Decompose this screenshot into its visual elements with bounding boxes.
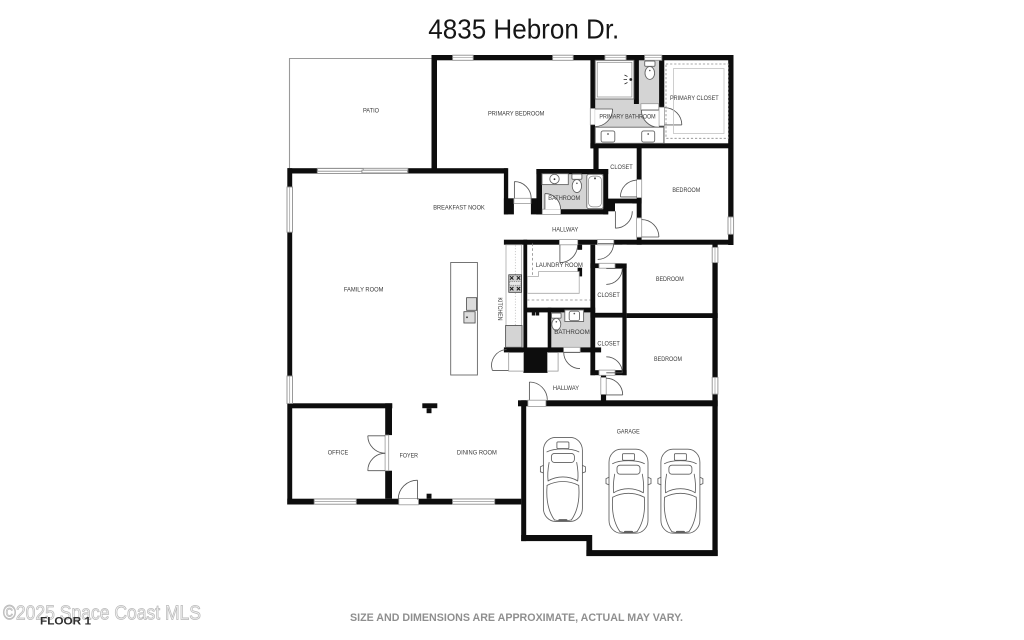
svg-text:LAUNDRY ROOM: LAUNDRY ROOM xyxy=(536,262,583,270)
svg-text:4835 Hebron Dr.: 4835 Hebron Dr. xyxy=(428,14,619,45)
svg-text:BEDROOM: BEDROOM xyxy=(654,355,682,363)
svg-text:SIZE AND DIMENSIONS ARE APPROX: SIZE AND DIMENSIONS ARE APPROXIMATE, ACT… xyxy=(350,612,683,624)
svg-text:FOYER: FOYER xyxy=(400,452,419,460)
svg-text:OFFICE: OFFICE xyxy=(328,449,348,457)
svg-text:PRIMARY CLOSET: PRIMARY CLOSET xyxy=(670,95,719,103)
svg-text:©2025 Space Coast MLS: ©2025 Space Coast MLS xyxy=(3,602,201,625)
svg-text:BEDROOM: BEDROOM xyxy=(656,276,684,284)
svg-text:CLOSET: CLOSET xyxy=(597,292,620,300)
svg-text:FAMILY ROOM: FAMILY ROOM xyxy=(344,286,384,294)
svg-text:HALLWAY: HALLWAY xyxy=(553,385,580,393)
svg-text:BATHROOM: BATHROOM xyxy=(548,194,580,202)
svg-text:BATHROOM: BATHROOM xyxy=(554,329,590,336)
svg-text:GARAGE: GARAGE xyxy=(617,428,640,436)
svg-text:KITCHEN: KITCHEN xyxy=(496,298,503,321)
svg-text:BEDROOM: BEDROOM xyxy=(672,187,700,195)
svg-text:FLOOR 1: FLOOR 1 xyxy=(40,616,91,628)
svg-text:HALLWAY: HALLWAY xyxy=(552,226,579,234)
svg-text:PRIMARY BATHROOM: PRIMARY BATHROOM xyxy=(599,113,655,121)
svg-text:PRIMARY BEDROOM: PRIMARY BEDROOM xyxy=(488,110,544,118)
svg-text:CLOSET: CLOSET xyxy=(597,340,620,348)
svg-text:DINING ROOM: DINING ROOM xyxy=(457,449,497,457)
svg-text:PATIO: PATIO xyxy=(363,107,379,115)
svg-text:CLOSET: CLOSET xyxy=(610,163,633,171)
svg-text:BREAKFAST NOOK: BREAKFAST NOOK xyxy=(433,204,485,212)
